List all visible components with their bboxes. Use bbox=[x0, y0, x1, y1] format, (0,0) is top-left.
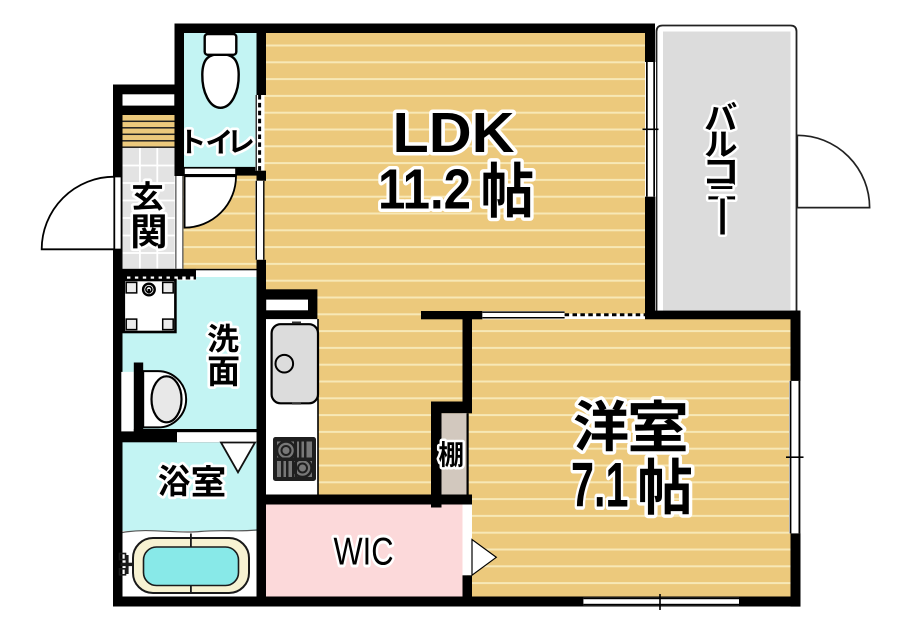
svg-text:11.2: 11.2 bbox=[378, 157, 471, 221]
svg-text:7.1: 7.1 bbox=[571, 450, 629, 520]
svg-text:WIC: WIC bbox=[334, 531, 394, 574]
svg-text:LDK: LDK bbox=[393, 101, 515, 165]
